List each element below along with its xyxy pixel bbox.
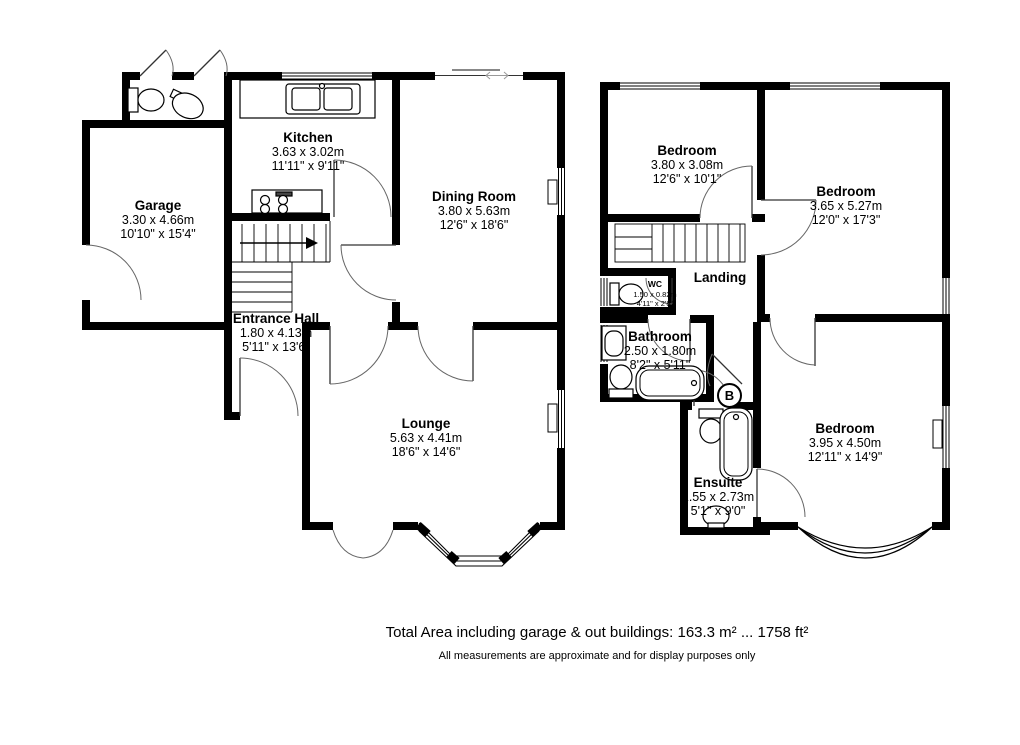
room-label-bedroom-3: Bedroom 3.95 x 4.50m 12'11" x 14'9" bbox=[808, 422, 883, 464]
room-label-garage: Garage 3.30 x 4.66m 10'10" x 15'4" bbox=[120, 199, 196, 241]
ensuite-bathtub-icon bbox=[720, 408, 752, 480]
kitchen-sink-icon bbox=[240, 80, 375, 118]
wc-toilet-icon bbox=[128, 88, 164, 112]
room-imperial: 18'6" x 14'6" bbox=[390, 445, 462, 459]
room-imperial: 12'11" x 14'9" bbox=[808, 450, 883, 464]
room-name: Bedroom bbox=[810, 185, 882, 199]
room-metric: 3.80 x 5.63m bbox=[432, 204, 516, 218]
room-label-bathroom: Bathroom 2.50 x 1.80m 8'2" x 5'11" bbox=[624, 330, 696, 372]
room-name: Bedroom bbox=[808, 422, 883, 436]
ground-floor-stairs bbox=[232, 221, 330, 312]
room-metric: 1.50 x 0.82m bbox=[633, 290, 676, 300]
room-metric: 5.63 x 4.41m bbox=[390, 431, 462, 445]
total-area-text: Total Area including garage & out buildi… bbox=[386, 624, 809, 641]
bathroom-basin-icon bbox=[602, 326, 626, 360]
room-metric: 3.95 x 4.50m bbox=[808, 436, 883, 450]
floorplan-image: Garage 3.30 x 4.66m 10'10" x 15'4" Kitch… bbox=[0, 0, 1020, 745]
room-label-landing: Landing bbox=[694, 271, 747, 285]
room-metric: 3.65 x 5.27m bbox=[810, 199, 882, 213]
wc-window-icon bbox=[601, 278, 607, 306]
room-label-bedroom-2: Bedroom 3.65 x 5.27m 12'0" x 17'3" bbox=[810, 185, 882, 227]
room-name: Dining Room bbox=[432, 190, 516, 204]
opening-arrow-icon bbox=[435, 70, 523, 79]
room-name: Entrance Hall bbox=[233, 312, 319, 326]
room-imperial: 8'2" x 5'11" bbox=[624, 358, 696, 372]
room-label-entrance-hall: Entrance Hall 1.80 x 4.13m 5'11" x 13'6" bbox=[233, 312, 319, 354]
room-name: Bedroom bbox=[651, 144, 723, 158]
room-imperial: 12'6" x 18'6" bbox=[432, 218, 516, 232]
bedroom3-side-window-icon bbox=[933, 406, 949, 468]
room-metric: 3.63 x 3.02m bbox=[272, 145, 345, 159]
dining-window-icon bbox=[548, 168, 565, 215]
room-imperial: 4'11" x 2'8" bbox=[633, 299, 676, 309]
room-label-bedroom-1: Bedroom 3.80 x 3.08m 12'6" x 10'1" bbox=[651, 144, 723, 186]
room-imperial: 12'0" x 17'3" bbox=[810, 213, 882, 227]
room-name: Bathroom bbox=[624, 330, 696, 344]
first-floor-stairs bbox=[615, 224, 745, 262]
room-imperial: 10'10" x 15'4" bbox=[120, 227, 196, 241]
bedroom2-side-window-icon bbox=[943, 278, 949, 318]
room-imperial: 12'6" x 10'1" bbox=[651, 172, 723, 186]
room-label-dining-room: Dining Room 3.80 x 5.63m 12'6" x 18'6" bbox=[432, 190, 516, 232]
room-imperial: 5'1" x 9'0" bbox=[682, 504, 754, 518]
room-metric: 1.55 x 2.73m bbox=[682, 490, 754, 504]
room-label-kitchen: Kitchen 3.63 x 3.02m 11'11" x 9'11" bbox=[272, 131, 345, 173]
disclaimer-text: All measurements are approximate and for… bbox=[439, 650, 756, 662]
room-label-ensuite: Ensuite 1.55 x 2.73m 5'1" x 9'0" bbox=[682, 476, 754, 518]
room-metric: 1.80 x 4.13m bbox=[233, 326, 319, 340]
room-name: Garage bbox=[120, 199, 196, 213]
kitchen-window-icon bbox=[282, 73, 372, 79]
room-imperial: 11'11" x 9'11" bbox=[272, 159, 345, 173]
room-name: WC bbox=[633, 280, 676, 290]
bay-window-icon bbox=[418, 523, 540, 566]
stove-icon bbox=[252, 190, 322, 214]
boiler-marker: B bbox=[717, 383, 742, 408]
room-metric: 3.80 x 3.08m bbox=[651, 158, 723, 172]
room-imperial: 5'11" x 13'6" bbox=[233, 340, 319, 354]
bedroom1-window-icon bbox=[620, 83, 700, 89]
bedroom2-top-window-icon bbox=[790, 83, 880, 89]
room-name: Ensuite bbox=[682, 476, 754, 490]
room-label-wc: WC 1.50 x 0.82m 4'11" x 2'8" bbox=[633, 280, 676, 309]
room-metric: 2.50 x 1.80m bbox=[624, 344, 696, 358]
wc-basin-icon bbox=[165, 87, 208, 124]
curved-bay-window-icon bbox=[798, 527, 932, 558]
room-name: Lounge bbox=[390, 417, 462, 431]
stairs-up-arrow-icon bbox=[240, 237, 318, 249]
room-name: Landing bbox=[694, 271, 747, 285]
lounge-window-icon bbox=[548, 390, 565, 448]
room-metric: 3.30 x 4.66m bbox=[120, 213, 196, 227]
room-label-lounge: Lounge 5.63 x 4.41m 18'6" x 14'6" bbox=[390, 417, 462, 459]
room-name: Kitchen bbox=[272, 131, 345, 145]
